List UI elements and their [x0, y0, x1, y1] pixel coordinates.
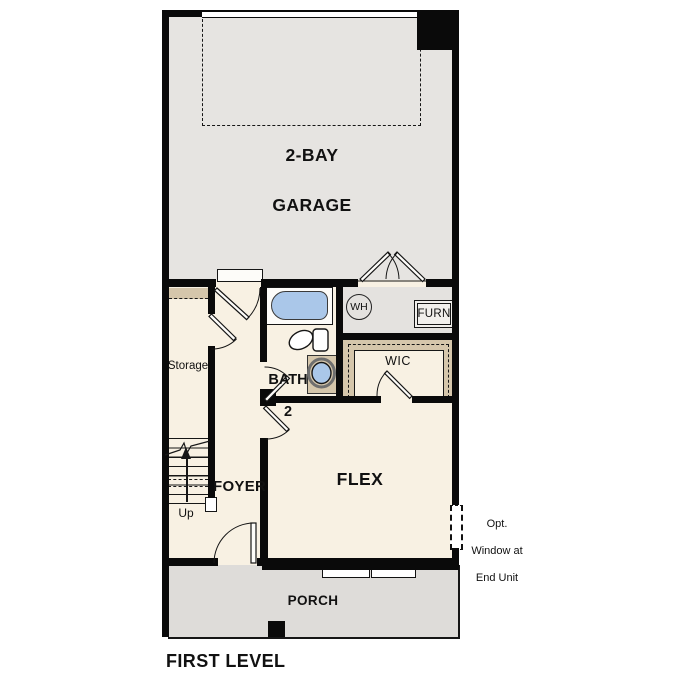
stair-wall-jamb: [205, 497, 217, 512]
foyer-label: FOYER: [213, 478, 263, 495]
flex-label: FLEX: [328, 469, 392, 490]
wall-wic-south-a: [336, 396, 381, 403]
bath-label-line2: 2: [264, 404, 312, 420]
stair-direction-arrow-head: [181, 447, 191, 459]
bath-label: BATH 2: [264, 356, 312, 436]
garage-label-line2: GARAGE: [232, 193, 392, 218]
wall-right-upper: [452, 40, 459, 505]
garage-parking-dashed-outline: [202, 14, 421, 126]
bathtub: [271, 291, 328, 320]
page-title: FIRST LEVEL: [166, 651, 346, 672]
garage-label-line1: 2-BAY: [232, 143, 392, 168]
staircase-dashed-lines: [168, 479, 208, 487]
wall-utility-south: [336, 333, 459, 340]
wall-stair-upper: [208, 279, 215, 314]
furnace: FURN: [414, 300, 454, 328]
wic-label: WIC: [376, 354, 420, 368]
furnace-label: FURN: [417, 303, 451, 325]
stair-direction-arrow-shaft: [186, 458, 188, 502]
opt-window-line1: Opt.: [461, 518, 533, 532]
bath-label-line1: BATH: [264, 372, 312, 388]
opt-window-line2: Window at: [461, 545, 533, 559]
wall-flex-front: [262, 558, 459, 570]
wall-garage-south-c: [426, 279, 459, 287]
floor-plan: WH FURN: [0, 0, 687, 687]
porch-post: [268, 621, 285, 637]
wall-left-exterior: [162, 10, 169, 637]
water-heater-label: WH: [350, 301, 368, 313]
storage-closet-shelf: [169, 288, 208, 299]
wall-flex-west: [260, 438, 268, 565]
garage-label: 2-BAY GARAGE: [232, 118, 392, 243]
garage-entry-door-slab: [217, 269, 263, 282]
storage-label: Storage: [165, 360, 211, 372]
wall-front-a: [162, 558, 218, 566]
up-label: Up: [173, 506, 199, 520]
opt-window-line3: End Unit: [461, 572, 533, 586]
porch-label: PORCH: [283, 593, 343, 608]
wall-wic-south-b: [412, 396, 459, 403]
wall-garage-south-b: [261, 279, 358, 287]
wall-utility-west: [336, 287, 343, 397]
wall-top-left: [162, 10, 204, 17]
wall-bath-west: [260, 287, 267, 362]
water-heater: WH: [346, 294, 372, 320]
opt-window-annotation: Opt. Window at End Unit: [461, 504, 533, 599]
garage-door: [202, 10, 419, 18]
